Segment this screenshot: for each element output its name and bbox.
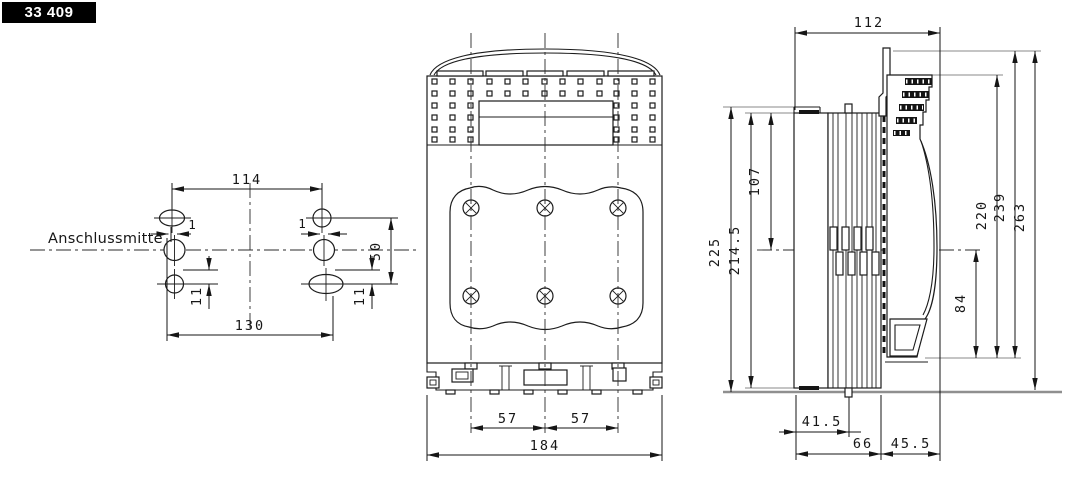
- dim-pole-pitch-left-label: 57: [498, 411, 518, 427]
- front-view: 57 57 184: [427, 33, 662, 461]
- technical-drawing-page: 33 409 Anschlussmitte: [0, 0, 1088, 492]
- dim-height-239-label: 239: [992, 192, 1008, 222]
- dim-offset-left-label: 1: [188, 217, 198, 232]
- dim-height-220-label: 220: [974, 200, 990, 230]
- dim-height-plates-label: 214.5: [727, 225, 743, 276]
- mounting-holes: [154, 204, 353, 301]
- side-view: 112 225 214.5 107 84 220 239 263 41.5: [707, 15, 1062, 461]
- side-body: [794, 104, 884, 397]
- dim-slot-right-label: 11: [352, 286, 368, 306]
- dim-offset-right-label: 1: [298, 216, 308, 231]
- dim-bottom-spacing-label: 130: [235, 318, 265, 334]
- dim-depth-top-label: 112: [854, 15, 884, 31]
- centerline-label: Anschlussmitte: [48, 231, 163, 247]
- dim-height-overall-label: 225: [707, 237, 723, 267]
- dim-top-spacing-label: 114: [232, 172, 262, 188]
- base-assembly: [427, 363, 662, 394]
- dim-top-to-center-label: 107: [747, 166, 763, 196]
- dim-center-to-bottom-label: 84: [953, 293, 969, 313]
- dim-overall-width-label: 184: [530, 438, 560, 454]
- dimension-drawing: Anschlussmitte: [0, 0, 1088, 492]
- dim-vertical-spacing-label: 50: [368, 241, 384, 261]
- dim-depth-66-label: 66: [853, 436, 873, 452]
- label-window: [479, 101, 613, 145]
- dim-pole-pitch-right-label: 57: [571, 411, 591, 427]
- dim-height-263-label: 263: [1012, 202, 1028, 232]
- dim-slot-left-label: 11: [189, 286, 205, 306]
- dim-depth-41-5-label: 41.5: [802, 414, 843, 430]
- top-straps: [437, 71, 654, 76]
- drilling-plan: Anschlussmitte: [30, 172, 416, 341]
- dim-depth-45-5-label: 45.5: [891, 436, 932, 452]
